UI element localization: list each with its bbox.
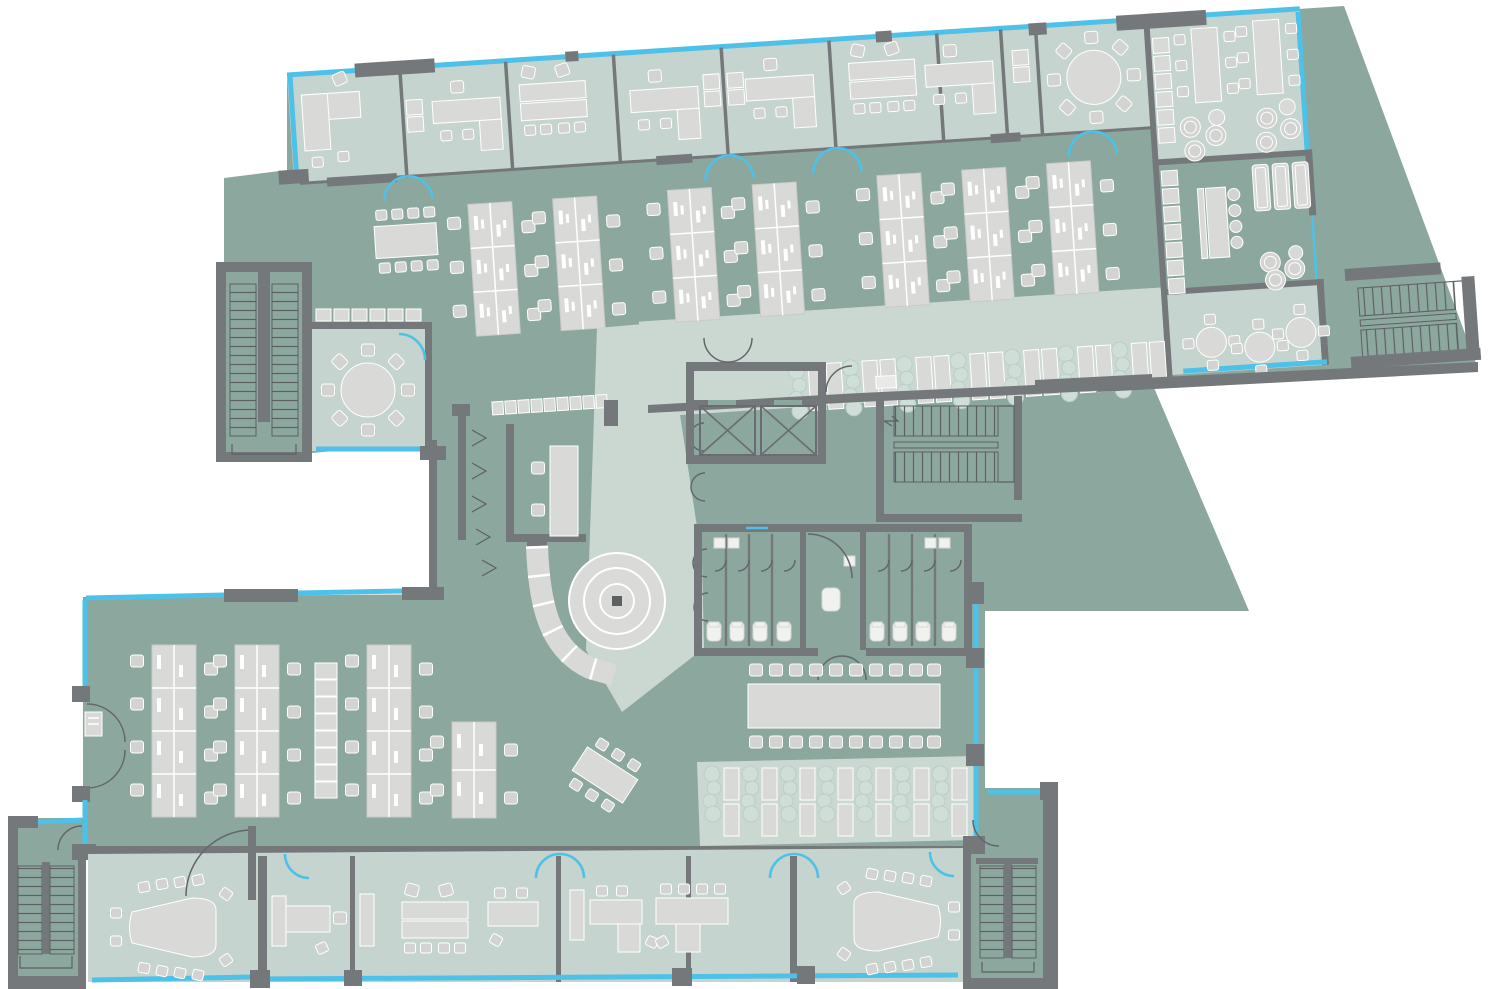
sink-icon xyxy=(728,538,739,548)
counter-chair xyxy=(532,504,545,516)
stair-flight xyxy=(50,866,74,954)
bench-row-3 xyxy=(646,186,741,323)
work-counter xyxy=(550,446,578,536)
bench-row-6 xyxy=(940,166,1035,303)
floor-plan-drawing xyxy=(0,0,1500,989)
meeting-room-left xyxy=(303,309,446,460)
bench-row-5 xyxy=(855,171,950,308)
bench-row-1 xyxy=(446,200,541,337)
stair-flight xyxy=(1358,281,1456,316)
stair-flight xyxy=(1012,866,1036,958)
sink-icon xyxy=(925,538,936,548)
wall-chunk xyxy=(875,30,892,42)
stair-flight xyxy=(894,406,998,436)
bench-row-2 xyxy=(531,195,626,332)
counter-chair xyxy=(532,462,545,474)
cart xyxy=(876,375,897,388)
bench-row-4 xyxy=(731,181,826,318)
bottom-room-band xyxy=(88,848,963,988)
reception-west-wall xyxy=(429,440,437,600)
copy-room-wall xyxy=(506,424,514,542)
locker-run-center xyxy=(315,663,337,798)
spiral-feature xyxy=(569,553,665,649)
stair-flight xyxy=(18,866,42,954)
stair-flight xyxy=(272,284,298,436)
bench-row-7 xyxy=(1025,159,1120,296)
stair-flight xyxy=(980,866,1004,958)
floor-plan-canvas xyxy=(0,0,1500,989)
wall-chunk xyxy=(565,51,579,62)
printer xyxy=(85,712,102,736)
stair-flight xyxy=(230,284,256,436)
stair-flight xyxy=(894,452,998,482)
sink-icon xyxy=(714,538,725,548)
sink-icon xyxy=(939,538,950,548)
